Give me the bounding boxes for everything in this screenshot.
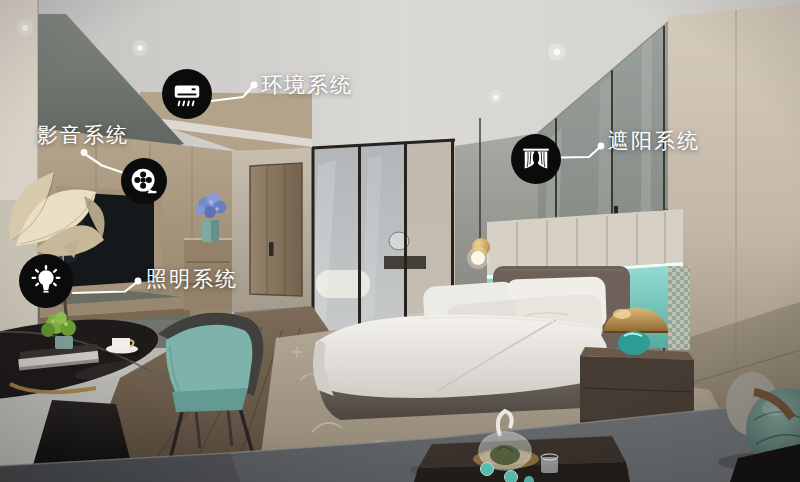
annotation-label-lighting: 照明系统 xyxy=(146,266,238,292)
light-bulb-icon xyxy=(28,263,64,299)
annotation-badge-shading[interactable] xyxy=(511,134,561,184)
annotation-badge-environment[interactable] xyxy=(162,69,212,119)
annotation-label-shading: 遮阳系统 xyxy=(608,128,700,154)
vignette xyxy=(0,0,800,482)
curtains-icon xyxy=(520,143,552,175)
air-conditioner-icon xyxy=(171,78,203,110)
annotation-badge-lighting[interactable] xyxy=(19,254,73,308)
annotation-label-audio-video: 影音系统 xyxy=(37,122,129,148)
film-reel-icon xyxy=(129,166,159,196)
annotated-hotel-room-image: 环境系统 影音系统 照明系统 xyxy=(0,0,800,482)
room-photo-illustration xyxy=(0,0,800,482)
annotation-label-environment: 环境系统 xyxy=(261,72,353,98)
annotation-badge-audio-video[interactable] xyxy=(121,158,167,204)
